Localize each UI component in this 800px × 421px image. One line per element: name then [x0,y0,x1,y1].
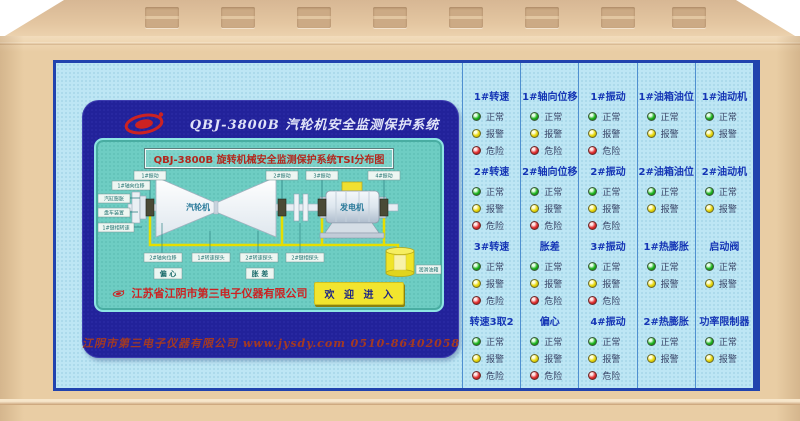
led-alarm-indicator [647,129,656,138]
svg-text:2#转速探头: 2#转速探头 [245,255,272,262]
bezel-footer-contact: 江阴市第三电子仪器有限公司 www.jysdy.com 0510-8640205… [82,335,459,351]
led-row: 正常 [647,108,695,125]
status-group: 2#热膨胀正常报警 [638,313,695,388]
led-row: 报警 [588,125,636,142]
led-alarm-indicator [705,129,714,138]
led-row: 报警 [472,275,520,292]
group-title: 启动阀 [696,238,753,253]
group-title: 4#振动 [579,313,636,328]
led-row: 危险 [530,367,578,384]
led-label: 危险 [486,144,504,157]
led-normal-indicator [588,337,597,346]
svg-text:3#振动: 3#振动 [313,173,330,180]
front-standard [132,192,140,223]
led-label: 危险 [602,144,620,157]
led-row: 正常 [705,183,753,200]
led-row: 报警 [588,275,636,292]
front-standard-2 [140,196,146,219]
led-alarm-indicator [472,204,481,213]
diagram-title: QBJ-3800B 旋转机械安全监测保护系统TSI分布图 [145,149,394,168]
led-alarm-indicator [647,204,656,213]
led-label: 报警 [544,277,562,290]
status-group: 2#油箱油位正常报警 [638,163,695,238]
led-alarm-indicator [472,279,481,288]
led-row: 危险 [472,217,520,234]
display-bezel: QBJ-3800B 汽轮机安全监测保护系统 QBJ-3800B 旋转机械安全监测… [82,100,459,358]
led-label: 报警 [544,202,562,215]
led-danger-indicator [530,221,539,230]
status-column: 1#转速正常报警危险2#转速正常报警危险3#转速正常报警危险转速3取2正常报警危… [462,63,520,388]
svg-text:1#转速探头: 1#转速探头 [197,255,224,262]
led-label: 正常 [661,335,679,348]
led-alarm-indicator [530,129,539,138]
led-label: 报警 [486,277,504,290]
vent-slot [297,7,331,28]
led-label: 报警 [486,202,504,215]
led-row: 正常 [647,183,695,200]
turbine-tsi-diagram: 汽轮机 [98,167,442,281]
brand-logo-icon [112,286,126,301]
led-label: 正常 [486,260,504,273]
status-group: 4#振动正常报警危险 [579,313,636,388]
led-row: 报警 [472,350,520,367]
status-grid: 1#转速正常报警危险2#转速正常报警危险3#转速正常报警危险转速3取2正常报警危… [462,63,753,388]
led-normal-indicator [705,337,714,346]
group-title: 偏心 [521,313,578,328]
group-title: 转速3取2 [463,313,520,328]
led-row: 正常 [530,258,578,275]
led-row: 正常 [530,108,578,125]
led-normal-indicator [472,187,481,196]
status-group: 1#振动正常报警危险 [579,88,636,163]
led-alarm-indicator [588,129,597,138]
led-normal-indicator [588,187,597,196]
led-label: 报警 [544,127,562,140]
led-row: 正常 [588,183,636,200]
status-column: 1#油动机正常报警2#油动机正常报警启动阀正常报警功率限制器正常报警 [695,63,753,388]
led-label: 危险 [602,219,620,232]
generator-label: 发电机 [339,202,364,212]
led-label: 危险 [544,219,562,232]
led-label: 报警 [719,352,737,365]
status-group: 启动阀正常报警 [696,238,753,313]
group-title: 2#油箱油位 [638,163,695,178]
coupling-disc [303,194,308,221]
turbine-body [156,177,276,237]
led-row: 正常 [472,258,520,275]
status-group: 2#转速正常报警危险 [463,163,520,238]
led-row: 报警 [647,200,695,217]
led-label: 正常 [719,185,737,198]
led-danger-indicator [472,221,481,230]
led-alarm-indicator [530,279,539,288]
led-normal-indicator [530,187,539,196]
led-label: 正常 [544,260,562,273]
group-title: 1#油动机 [696,88,753,103]
group-title: 2#油动机 [696,163,753,178]
led-row: 危险 [530,292,578,309]
led-label: 报警 [719,202,737,215]
led-alarm-indicator [588,204,597,213]
led-normal-indicator [647,337,656,346]
led-alarm-indicator [472,354,481,363]
coupling-disc [294,194,299,221]
led-row: 危险 [588,217,636,234]
svg-text:4#振动: 4#振动 [375,173,392,180]
status-group: 1#油动机正常报警 [696,88,753,163]
led-danger-indicator [530,146,539,155]
group-title: 3#振动 [579,238,636,253]
company-name: 江苏省江阴市第三电子仪器有限公司 [132,285,308,301]
status-group: 2#振动正常报警危险 [579,163,636,238]
led-danger-indicator [472,146,481,155]
led-alarm-indicator [472,129,481,138]
led-alarm-indicator [705,354,714,363]
status-group: 胀差正常报警危险 [521,238,578,313]
led-row: 正常 [588,108,636,125]
led-row: 正常 [705,108,753,125]
status-column: 1#油箱油位正常报警2#油箱油位正常报警1#热膨胀正常报警2#热膨胀正常报警 [637,63,695,388]
led-danger-indicator [530,371,539,380]
welcome-enter-button[interactable]: 欢 迎 进 入 [314,282,404,305]
led-label: 报警 [602,352,620,365]
led-normal-indicator [588,262,597,271]
brand-logo-icon [122,110,168,137]
led-row: 危险 [472,292,520,309]
led-row: 危险 [530,142,578,159]
group-title: 功率限制器 [696,313,753,328]
group-title: 1#热膨胀 [638,238,695,253]
svg-text:2#键相探头: 2#键相探头 [291,255,318,262]
led-row: 报警 [647,125,695,142]
led-alarm-indicator [530,204,539,213]
led-row: 报警 [647,275,695,292]
led-normal-indicator [530,337,539,346]
led-row: 报警 [472,125,520,142]
turbine-label: 汽轮机 [186,202,210,212]
status-group: 1#油箱油位正常报警 [638,88,695,163]
led-label: 正常 [719,335,737,348]
led-alarm-indicator [647,279,656,288]
led-label: 正常 [602,185,620,198]
led-row: 危险 [472,142,520,159]
case-top-vent-panel [0,0,800,37]
led-row: 正常 [647,258,695,275]
led-row: 危险 [530,217,578,234]
led-normal-indicator [705,187,714,196]
led-row: 报警 [530,200,578,217]
led-normal-indicator [705,112,714,121]
status-column: 1#轴向位移正常报警危险2#轴向位移正常报警危险胀差正常报警危险偏心正常报警危险 [520,63,578,388]
led-alarm-indicator [705,279,714,288]
led-row: 报警 [530,350,578,367]
vibration-labels: 1#振动 2#振动 3#振动 4#振动 [134,171,400,180]
led-label: 报警 [661,127,679,140]
led-label: 危险 [544,294,562,307]
status-group: 功率限制器正常报警 [696,313,753,388]
led-row: 报警 [530,125,578,142]
vent-slot [449,7,483,28]
led-normal-indicator [647,112,656,121]
svg-text:1#振动: 1#振动 [141,173,158,180]
led-row: 正常 [472,333,520,350]
led-label: 报警 [544,352,562,365]
svg-text:胀 差: 胀 差 [252,269,268,278]
led-row: 报警 [705,125,753,142]
led-label: 报警 [602,127,620,140]
led-label: 报警 [486,127,504,140]
led-danger-indicator [472,296,481,305]
led-label: 报警 [486,352,504,365]
status-group: 2#轴向位移正常报警危险 [521,163,578,238]
status-group: 3#转速正常报警危险 [463,238,520,313]
vent-slot [601,7,635,28]
led-normal-indicator [647,187,656,196]
led-danger-indicator [588,146,597,155]
led-row: 危险 [472,367,520,384]
led-row: 正常 [588,258,636,275]
led-row: 正常 [705,333,753,350]
instrument-case: QBJ-3800B 汽轮机安全监测保护系统 QBJ-3800B 旋转机械安全监测… [0,0,800,421]
led-label: 正常 [602,335,620,348]
led-label: 正常 [544,110,562,123]
led-danger-indicator [588,371,597,380]
status-group: 1#轴向位移正常报警危险 [521,88,578,163]
led-normal-indicator [472,112,481,121]
tank-label: 润滑油箱 [418,267,438,274]
vent-slot [145,7,179,28]
led-danger-indicator [472,371,481,380]
svg-text:偏 心: 偏 心 [160,269,176,278]
group-title: 1#油箱油位 [638,88,695,103]
svg-text:2#轴向位移: 2#轴向位移 [149,255,176,262]
led-label: 正常 [486,335,504,348]
led-normal-indicator [647,262,656,271]
led-row: 报警 [588,350,636,367]
led-label: 正常 [661,185,679,198]
group-title: 胀差 [521,238,578,253]
case-bottom-groove [0,399,800,405]
led-row: 正常 [530,183,578,200]
led-row: 报警 [705,350,753,367]
led-alarm-indicator [647,354,656,363]
led-row: 正常 [472,108,520,125]
status-group: 转速3取2正常报警危险 [463,313,520,388]
led-alarm-indicator [588,279,597,288]
led-normal-indicator [530,112,539,121]
group-title: 3#转速 [463,238,520,253]
led-label: 正常 [602,110,620,123]
led-row: 报警 [647,350,695,367]
led-row: 正常 [588,333,636,350]
led-label: 危险 [544,369,562,382]
front-panel: QBJ-3800B 汽轮机安全监测保护系统 QBJ-3800B 旋转机械安全监测… [53,60,760,391]
led-label: 正常 [544,335,562,348]
led-normal-indicator [472,337,481,346]
led-label: 报警 [719,277,737,290]
led-label: 正常 [661,260,679,273]
led-label: 危险 [544,144,562,157]
led-label: 报警 [661,277,679,290]
device-title: QBJ-3800B 汽轮机安全监测保护系统 [180,114,449,133]
group-title: 2#振动 [579,163,636,178]
led-row: 正常 [647,333,695,350]
led-danger-indicator [588,296,597,305]
vent-slot [525,7,559,28]
status-group: 3#振动正常报警危险 [579,238,636,313]
group-title: 2#热膨胀 [638,313,695,328]
monitor-screen: QBJ-3800B 旋转机械安全监测保护系统TSI分布图 [94,138,444,312]
led-label: 正常 [486,110,504,123]
svg-text:盘车装置: 盘车装置 [104,210,124,217]
led-normal-indicator [705,262,714,271]
group-title: 1#振动 [579,88,636,103]
led-label: 报警 [602,277,620,290]
group-title: 1#轴向位移 [521,88,578,103]
led-label: 报警 [661,202,679,215]
led-label: 危险 [486,219,504,232]
led-normal-indicator [472,262,481,271]
svg-text:1#轴向位移: 1#轴向位移 [117,183,144,190]
status-group: 2#油动机正常报警 [696,163,753,238]
led-row: 报警 [472,200,520,217]
group-title: 2#轴向位移 [521,163,578,178]
led-row: 危险 [588,292,636,309]
vent-slot [672,7,706,28]
led-label: 报警 [719,127,737,140]
led-label: 危险 [602,294,620,307]
led-row: 报警 [588,200,636,217]
led-row: 报警 [705,275,753,292]
led-danger-indicator [530,296,539,305]
led-alarm-indicator [530,354,539,363]
led-label: 危险 [486,369,504,382]
led-danger-indicator [588,221,597,230]
led-label: 正常 [719,110,737,123]
led-label: 正常 [486,185,504,198]
status-group: 1#热膨胀正常报警 [638,238,695,313]
led-row: 危险 [588,142,636,159]
status-column: 1#振动正常报警危险2#振动正常报警危险3#振动正常报警危险4#振动正常报警危险 [578,63,636,388]
led-label: 危险 [486,294,504,307]
led-row: 正常 [530,333,578,350]
bottom-sensor-labels: 2#轴向位移 1#转速探头 2#转速探头 2#键相探头 偏 心 胀 差 [144,223,324,279]
led-alarm-indicator [705,204,714,213]
group-title: 2#转速 [463,163,520,178]
led-label: 危险 [602,369,620,382]
svg-text:1#键相转速: 1#键相转速 [102,225,129,232]
led-row: 正常 [472,183,520,200]
led-label: 正常 [602,260,620,273]
led-row: 危险 [588,367,636,384]
led-row: 报警 [705,200,753,217]
led-row: 报警 [530,275,578,292]
led-label: 报警 [602,202,620,215]
led-alarm-indicator [588,354,597,363]
status-group: 1#转速正常报警危险 [463,88,520,163]
vent-slot [221,7,255,28]
group-title: 1#转速 [463,88,520,103]
led-label: 正常 [544,185,562,198]
led-label: 报警 [661,352,679,365]
led-row: 正常 [705,258,753,275]
oil-tank [386,248,414,277]
led-normal-indicator [588,112,597,121]
led-label: 正常 [661,110,679,123]
svg-text:2#振动: 2#振动 [273,173,290,180]
led-normal-indicator [530,262,539,271]
led-label: 正常 [719,260,737,273]
vent-slot [373,7,407,28]
status-group: 偏心正常报警危险 [521,313,578,388]
svg-text:汽缸膨胀: 汽缸膨胀 [104,196,124,203]
